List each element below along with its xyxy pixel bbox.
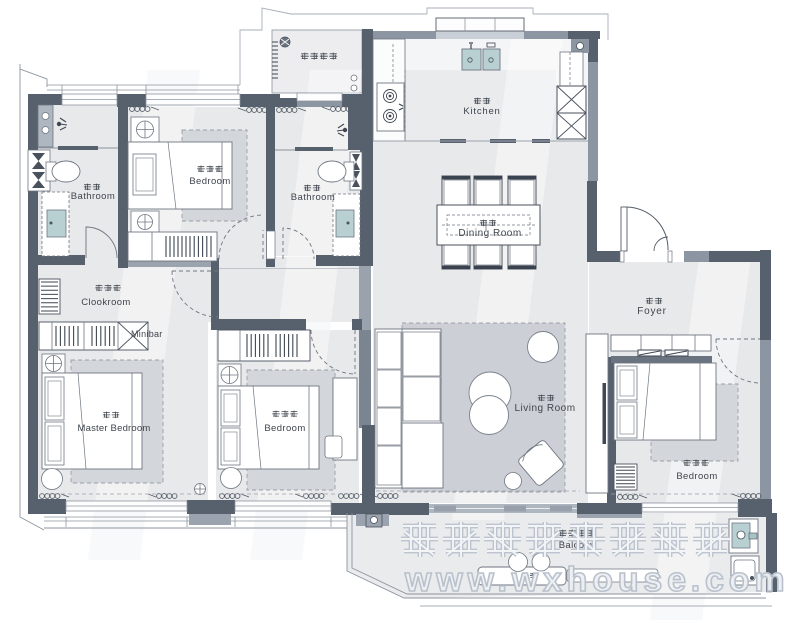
svg-text:Bathroom: Bathroom <box>291 192 335 203</box>
svg-text:Bedroom: Bedroom <box>264 423 305 434</box>
svg-text:Bathroom: Bathroom <box>71 191 115 202</box>
svg-text:Living Room: Living Room <box>514 403 575 414</box>
svg-text:Bedroom: Bedroom <box>189 176 230 187</box>
svg-text:Kitchen: Kitchen <box>463 106 500 117</box>
svg-text:Foyer: Foyer <box>637 306 667 317</box>
svg-text:Minibar: Minibar <box>131 329 163 339</box>
svg-text:Master Bedroom: Master Bedroom <box>77 423 150 434</box>
svg-text:Bedroom: Bedroom <box>676 471 717 482</box>
svg-text:Clookroom: Clookroom <box>81 297 131 308</box>
svg-text:www.wxhouse.com: www.wxhouse.com <box>404 561 789 599</box>
svg-text:Dining Room: Dining Room <box>458 228 521 239</box>
